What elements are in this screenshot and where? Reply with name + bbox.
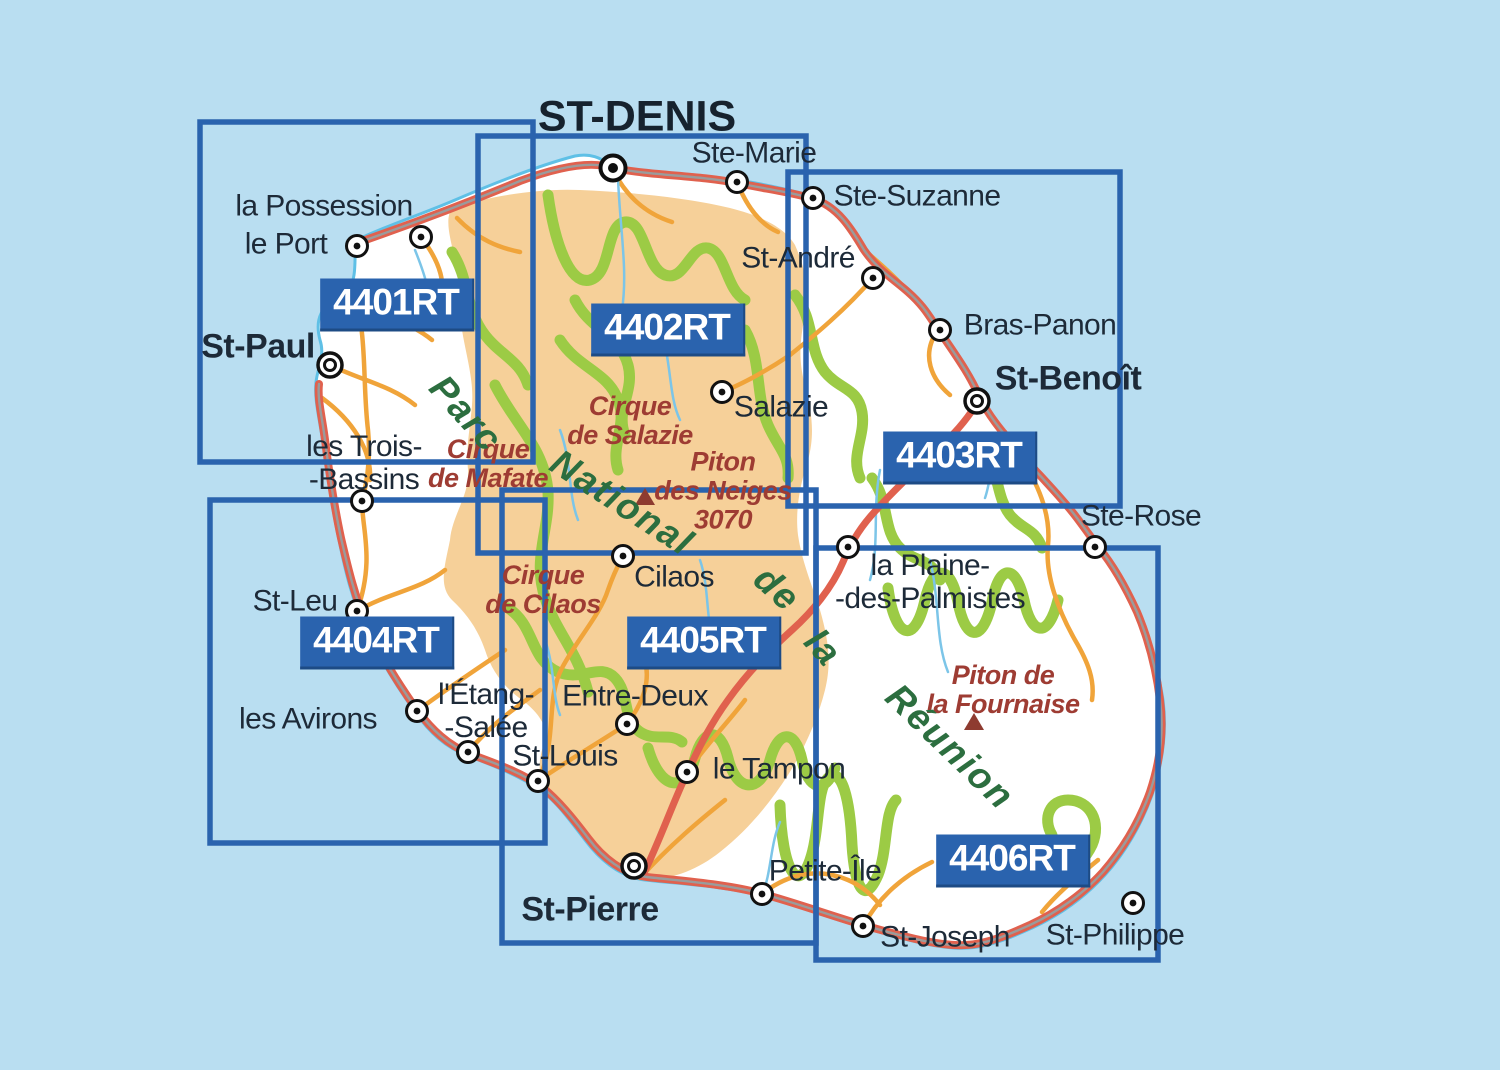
- town-label-st-louis: St-Louis: [512, 740, 617, 773]
- sheet-label-4405rt: 4405RT: [627, 617, 781, 670]
- town-label-st-joseph: St-Joseph: [880, 921, 1010, 954]
- geo-label-cirque-de-salazie: Cirque de Salazie: [567, 392, 693, 450]
- town-label-st-deiis: ST-DENIS: [538, 93, 736, 140]
- geo-label-de: de: [745, 558, 808, 621]
- sheet-label-4401rt: 4401RT: [320, 279, 474, 332]
- geo-label-cirque-de-cilaos: Cirque de Cilaos: [485, 561, 601, 619]
- town-label-cilaos: Cilaos: [634, 561, 714, 594]
- town-label-ste-rose: Ste-Rose: [1081, 500, 1201, 533]
- town-label-les-avirois: les Avirons: [239, 703, 377, 736]
- town-label-st-leu: St-Leu: [253, 585, 338, 618]
- town-label-bras-paioi: Bras-Panon: [964, 309, 1116, 342]
- town-label-la-plaiie-des-palmistes: la Plaine- -des-Palmistes: [835, 549, 1025, 615]
- town-label-ste-suzaiie: Ste-Suzanne: [834, 180, 1001, 213]
- town-label-ste-marie: Ste-Marie: [692, 137, 817, 170]
- town-label-st-aidre: St-André: [741, 242, 855, 275]
- town-label-lietaig-salee: l'Étang- -Salée: [438, 678, 534, 744]
- sheet-label-4404rt: 4404RT: [300, 617, 454, 670]
- geo-label-la: la: [796, 621, 851, 675]
- labels-layer: 4401RT4402RT4403RT4404RT4405RT4406RTST-D…: [0, 0, 1500, 1070]
- sheet-label-4406rt: 4406RT: [936, 835, 1090, 888]
- town-label-le-tampoi: le Tampon: [713, 753, 845, 786]
- sheet-label-4402rt: 4402RT: [591, 304, 745, 357]
- town-label-les-trois-bassiis: les Trois- -Bassins: [306, 430, 422, 496]
- town-label-salazie: Salazie: [734, 391, 828, 424]
- geo-label-pitoi-de-la-fouriaise: Piton de la Fournaise: [926, 661, 1079, 719]
- town-label-st-pierre: St-Pierre: [521, 891, 658, 928]
- town-label-st-paul: St-Paul: [201, 328, 315, 365]
- town-label-st-philippe: St-Philippe: [1046, 919, 1184, 952]
- town-label-la-possessioi: la Possession: [235, 190, 412, 223]
- town-label-eitre-deux: Entre-Deux: [562, 680, 708, 713]
- town-label-st-beioit: St-Benoît: [995, 360, 1142, 397]
- map-stage: 4401RT4402RT4403RT4404RT4405RT4406RTST-D…: [0, 0, 1500, 1070]
- town-label-petite-ile: Petite-Île: [769, 855, 881, 888]
- town-label-le-port: le Port: [245, 228, 328, 261]
- sheet-label-4403rt: 4403RT: [883, 432, 1037, 485]
